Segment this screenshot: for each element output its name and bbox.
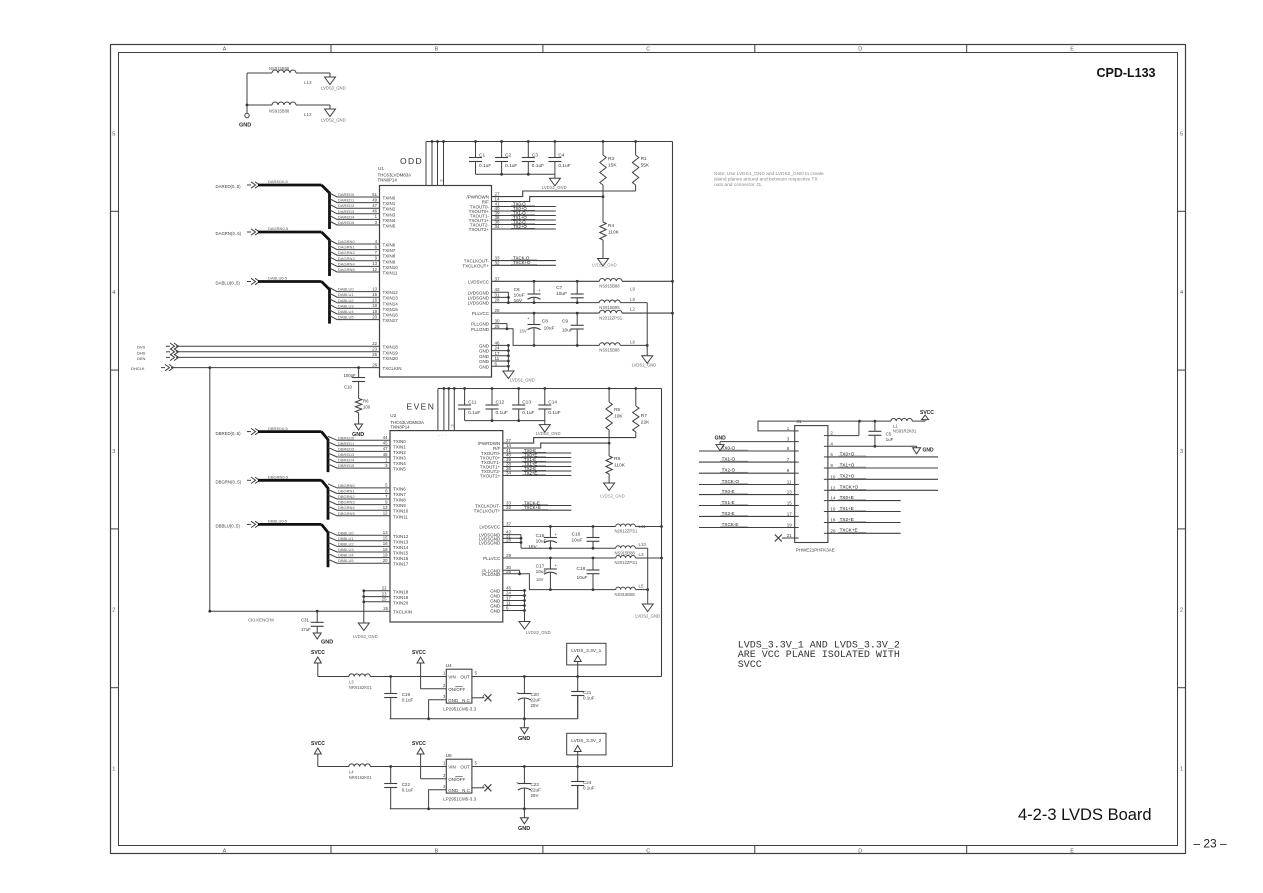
svg-text:19: 19 — [372, 309, 377, 314]
svg-text:EVEN: EVEN — [407, 402, 436, 412]
svg-text:.. .. ..: .. .. .. — [426, 187, 435, 192]
svg-text:L3: L3 — [639, 552, 645, 557]
svg-text:R8: R8 — [614, 456, 620, 462]
svg-text:NR9152K01: NR9152K01 — [349, 775, 372, 780]
svg-text:1: 1 — [1180, 767, 1183, 773]
svg-text:DARED5: DARED5 — [338, 220, 355, 225]
svg-text:16: 16 — [830, 507, 836, 512]
svg-text:DARED0: DARED0 — [338, 192, 355, 197]
svg-text:NS915B88: NS915B88 — [269, 66, 290, 71]
svg-text:GND: GND — [321, 640, 333, 646]
svg-text:GND: GND — [518, 736, 530, 742]
svg-text:0.1uF: 0.1uF — [583, 696, 595, 701]
svg-text:PLLVCC: PLLVCC — [483, 556, 501, 561]
svg-text:25: 25 — [506, 569, 512, 574]
svg-text:C: C — [646, 47, 650, 53]
svg-text:3: 3 — [112, 449, 115, 455]
svg-text:51: 51 — [372, 192, 377, 197]
svg-text:47: 47 — [372, 203, 377, 208]
svg-text:R6: R6 — [363, 399, 369, 404]
svg-text:TXIN15: TXIN15 — [393, 551, 409, 556]
svg-text:TXCK+E: TXCK+E — [840, 528, 858, 533]
svg-text:L13: L13 — [304, 80, 312, 85]
svg-text:N2012ZPS1: N2012ZPS1 — [615, 560, 638, 565]
svg-text:TXIN12: TXIN12 — [383, 290, 399, 295]
svg-text:A: A — [223, 47, 227, 53]
svg-text:TXIN14: TXIN14 — [393, 545, 409, 550]
svg-text:DARED(0..5): DARED(0..5) — [216, 184, 242, 189]
svg-text:TXCLKIN: TXCLKIN — [393, 610, 412, 615]
svg-text:TX2-O: TX2-O — [722, 468, 736, 473]
svg-text:C14: C14 — [548, 400, 557, 406]
svg-text:SVCC: SVCC — [311, 741, 325, 747]
svg-text:.. .. ..: .. .. .. — [438, 432, 447, 437]
svg-text:DARED2: DARED2 — [338, 203, 355, 208]
svg-text:R: R — [440, 178, 443, 183]
svg-text:ARE VCC PLANE ISOLATED WITH: ARE VCC PLANE ISOLATED WITH — [738, 650, 900, 661]
svg-text:TXIN19: TXIN19 — [383, 350, 399, 355]
svg-text:TXOUT2+: TXOUT2+ — [469, 227, 490, 232]
svg-text:10uF: 10uF — [577, 575, 588, 581]
svg-text:DBBLU5: DBBLU5 — [338, 558, 354, 563]
svg-text:R7: R7 — [641, 413, 647, 419]
svg-text:DABLU(0..5): DABLU(0..5) — [216, 281, 241, 286]
svg-text:TXIN6: TXIN6 — [383, 243, 396, 248]
svg-text:DBGRN(0..5): DBGRN(0..5) — [216, 480, 242, 485]
svg-text:C12: C12 — [496, 400, 505, 406]
svg-text:19: 19 — [383, 552, 388, 557]
svg-text:TXIN7: TXIN7 — [393, 492, 406, 497]
svg-text:LVDS2_GND: LVDS2_GND — [635, 614, 660, 619]
svg-text:LVDS_3.3V_1: LVDS_3.3V_1 — [571, 648, 601, 654]
svg-text:CPD-L133: CPD-L133 — [1096, 66, 1155, 80]
svg-text:12: 12 — [383, 511, 388, 516]
svg-text:DABLU5: DABLU5 — [338, 315, 354, 320]
svg-text:N.C: N.C — [462, 698, 471, 703]
svg-text:16V: 16V — [514, 298, 523, 304]
svg-text:NS915B88: NS915B88 — [269, 109, 290, 114]
svg-text:16V: 16V — [536, 577, 544, 582]
svg-text:R3: R3 — [608, 156, 614, 162]
svg-text:C19: C19 — [402, 692, 411, 697]
svg-text:0.1uF: 0.1uF — [479, 163, 491, 169]
svg-text:LVDS1_GND: LVDS1_GND — [542, 185, 567, 190]
svg-text:GND: GND — [490, 609, 501, 614]
svg-text:C17: C17 — [536, 564, 545, 570]
svg-text:32: 32 — [495, 260, 501, 265]
svg-text:DBRED1: DBRED1 — [338, 441, 355, 446]
svg-text:NS915B88: NS915B88 — [615, 592, 636, 597]
svg-text:SVCC: SVCC — [412, 741, 426, 747]
svg-text:2: 2 — [112, 608, 115, 614]
svg-text:22: 22 — [382, 586, 387, 591]
svg-text:DABLU4: DABLU4 — [338, 309, 354, 314]
svg-text:LVDS1_GND: LVDS1_GND — [632, 363, 657, 368]
svg-text:L4: L4 — [349, 770, 354, 775]
svg-text:DAGRN4: DAGRN4 — [338, 261, 355, 266]
svg-text:10uF: 10uF — [536, 569, 547, 575]
svg-text:29: 29 — [506, 553, 512, 558]
svg-text:LVDS1_GND: LVDS1_GND — [510, 378, 535, 383]
svg-text:DHCLK: DHCLK — [131, 366, 145, 371]
svg-text:48: 48 — [383, 452, 388, 457]
svg-text:TNN8P14: TNN8P14 — [378, 178, 398, 183]
svg-text:J1: J1 — [796, 419, 801, 425]
svg-text:TXIN5: TXIN5 — [393, 467, 406, 472]
svg-text:1: 1 — [112, 767, 115, 773]
svg-text:25: 25 — [372, 352, 377, 357]
svg-text:10: 10 — [830, 474, 836, 479]
svg-text:110K: 110K — [614, 463, 626, 469]
svg-text:22: 22 — [372, 341, 377, 346]
svg-text:DABLU1: DABLU1 — [338, 292, 354, 297]
svg-text:VIN: VIN — [448, 675, 456, 680]
svg-text:PLLGND: PLLGND — [482, 572, 501, 577]
svg-text:R5: R5 — [614, 407, 620, 413]
svg-text:15: 15 — [372, 292, 377, 297]
svg-text:DBBLU0: DBBLU0 — [338, 530, 354, 535]
svg-text:TNN8P14: TNN8P14 — [390, 425, 410, 430]
svg-text:C2: C2 — [505, 153, 511, 159]
svg-text:TXIN13: TXIN13 — [383, 296, 399, 301]
svg-text:TX0+O: TX0+O — [840, 451, 855, 456]
svg-text:TXIN10: TXIN10 — [383, 265, 399, 270]
svg-text:DBBLU4: DBBLU4 — [338, 553, 354, 558]
svg-text:10uF: 10uF — [556, 291, 567, 297]
svg-text:TXCK+O: TXCK+O — [840, 485, 859, 490]
svg-text:N.C: N.C — [462, 788, 471, 793]
svg-text:4: 4 — [1180, 290, 1183, 296]
svg-text:L11: L11 — [639, 524, 647, 529]
svg-text:C22: C22 — [402, 782, 411, 787]
svg-text:DBGRN5: DBGRN5 — [338, 511, 355, 516]
svg-text:LVDSVCC: LVDSVCC — [479, 525, 501, 530]
svg-text:4: 4 — [112, 290, 115, 296]
svg-text:TXIN3: TXIN3 — [383, 212, 396, 217]
svg-text:D: D — [858, 47, 862, 53]
svg-text:15: 15 — [383, 536, 388, 541]
svg-text:3: 3 — [1180, 449, 1183, 455]
svg-text:13: 13 — [383, 505, 388, 510]
svg-text:34: 34 — [506, 471, 512, 476]
svg-text:DAGRN0: DAGRN0 — [338, 239, 355, 244]
svg-text:TXIN14: TXIN14 — [383, 301, 399, 306]
svg-text:DBBLU0-5: DBBLU0-5 — [268, 519, 288, 524]
svg-text:C7: C7 — [556, 285, 562, 291]
svg-text:10uF: 10uF — [572, 538, 583, 544]
svg-text:DBRED0-5: DBRED0-5 — [268, 426, 289, 431]
svg-text:E: E — [1070, 849, 1074, 855]
svg-text:17: 17 — [787, 511, 793, 516]
svg-text:5: 5 — [112, 131, 115, 137]
svg-text:DBBLU2: DBBLU2 — [338, 541, 354, 546]
svg-text:45: 45 — [383, 441, 388, 446]
svg-text:R1: R1 — [641, 156, 647, 162]
svg-text:DBRED(0..5): DBRED(0..5) — [216, 431, 242, 436]
svg-text:2: 2 — [1180, 608, 1183, 614]
svg-text:29: 29 — [495, 308, 501, 313]
svg-text:0.1uF: 0.1uF — [532, 163, 544, 169]
svg-text:100: 100 — [363, 405, 371, 410]
svg-text:LVDS2_GND: LVDS2_GND — [600, 494, 625, 499]
svg-text:C4: C4 — [558, 153, 564, 159]
svg-text:GND: GND — [448, 698, 459, 703]
svg-text:+: + — [538, 288, 541, 293]
svg-text:4-2-3 LVDS Board: 4-2-3 LVDS Board — [1018, 806, 1152, 824]
svg-text:TXIN2: TXIN2 — [383, 207, 396, 212]
svg-text:TXIN18: TXIN18 — [393, 589, 409, 594]
svg-text:LVDS_3.3V_2: LVDS_3.3V_2 — [571, 738, 601, 744]
svg-text:TXIN17: TXIN17 — [393, 562, 409, 567]
svg-text:CKI:KENCHK: CKI:KENCHK — [248, 618, 274, 623]
svg-text:TXIN13: TXIN13 — [393, 539, 409, 544]
svg-text:ON/OFF: ON/OFF — [448, 777, 465, 782]
svg-text:C6: C6 — [514, 287, 520, 293]
svg-text:DABLU0-5: DABLU0-5 — [268, 276, 288, 281]
svg-text:OUT: OUT — [460, 765, 470, 770]
svg-text:TXCK-O: TXCK-O — [722, 479, 740, 484]
svg-text:TXIN1: TXIN1 — [383, 201, 396, 206]
svg-text:DBGRN4: DBGRN4 — [338, 505, 355, 510]
svg-text:DBRED3: DBRED3 — [338, 452, 355, 457]
svg-text:DVS: DVS — [137, 345, 146, 350]
svg-text:C9: C9 — [562, 319, 568, 325]
svg-text:outs and connector J1.: outs and connector J1. — [714, 182, 763, 188]
svg-text:0.1uF: 0.1uF — [505, 163, 517, 169]
svg-text:55K: 55K — [641, 163, 650, 169]
svg-text:TX1-E: TX1-E — [722, 500, 735, 505]
svg-text:TXIN6: TXIN6 — [393, 486, 406, 491]
svg-text:GND: GND — [518, 826, 530, 832]
svg-text:DBGRN0: DBGRN0 — [338, 483, 355, 488]
svg-text:GND: GND — [479, 359, 490, 364]
svg-text:DEN: DEN — [137, 356, 146, 361]
svg-text:DAGRN3: DAGRN3 — [338, 256, 355, 261]
svg-text:TXIN17: TXIN17 — [383, 318, 399, 323]
svg-text:DARED4: DARED4 — [338, 214, 355, 219]
svg-text:LVDSGND: LVDSGND — [479, 541, 501, 546]
svg-text:DABLU3: DABLU3 — [338, 303, 354, 308]
svg-text:C21: C21 — [583, 690, 592, 695]
svg-text:11: 11 — [787, 480, 792, 485]
svg-text:DBGRN1: DBGRN1 — [338, 489, 355, 494]
svg-text:DARED3: DARED3 — [338, 209, 355, 214]
svg-text:+: + — [527, 316, 530, 321]
svg-text:DARED0-5: DARED0-5 — [268, 179, 289, 184]
svg-text:15K: 15K — [608, 163, 617, 169]
svg-text:R4: R4 — [608, 223, 614, 229]
svg-text:– 23 –: – 23 – — [1193, 837, 1227, 851]
svg-text:GND: GND — [715, 436, 727, 442]
svg-text:TX1+O: TX1+O — [840, 462, 855, 467]
svg-text:17uF: 17uF — [301, 627, 311, 632]
svg-text:DBBLU3: DBBLU3 — [338, 547, 354, 552]
svg-text:GND: GND — [923, 448, 935, 454]
svg-text:16V: 16V — [519, 328, 527, 333]
svg-text:C16: C16 — [572, 532, 581, 538]
svg-text:TX2+O: TX2+O — [840, 474, 855, 479]
svg-text:U5: U5 — [446, 753, 452, 759]
svg-text:U1: U1 — [378, 166, 384, 171]
svg-text:37: 37 — [506, 522, 512, 527]
svg-text:LVDSGND: LVDSGND — [468, 301, 490, 306]
svg-text:110K: 110K — [608, 230, 620, 236]
svg-text:13: 13 — [383, 530, 388, 535]
svg-text:E: E — [1070, 47, 1074, 53]
svg-text:34: 34 — [495, 224, 501, 229]
svg-text:12: 12 — [372, 267, 377, 272]
svg-text:+: + — [555, 532, 558, 537]
svg-text:N2012ZPS1: N2012ZPS1 — [599, 315, 622, 320]
svg-text:TX1+E: TX1+E — [840, 506, 854, 511]
svg-text:TXIN1: TXIN1 — [393, 444, 406, 449]
svg-text:LP2951CM5-3.3: LP2951CM5-3.3 — [443, 707, 476, 712]
svg-text:TXIN11: TXIN11 — [383, 271, 398, 276]
svg-text:ODD: ODD — [400, 156, 423, 166]
svg-text:13: 13 — [787, 490, 793, 495]
svg-text:+: + — [516, 691, 519, 696]
svg-text:22K: 22K — [641, 420, 650, 426]
svg-text:SVCC: SVCC — [920, 410, 934, 416]
svg-text:13: 13 — [372, 286, 377, 291]
svg-text:10uF: 10uF — [562, 328, 573, 334]
svg-text:TX2+E: TX2+E — [840, 517, 854, 522]
svg-text:5: 5 — [1180, 131, 1183, 137]
svg-text:TXCLKOUT+: TXCLKOUT+ — [474, 508, 501, 513]
svg-text:NS91R2K01: NS91R2K01 — [893, 429, 917, 434]
svg-text:DBRED4: DBRED4 — [338, 458, 355, 463]
svg-text:LVDS3_GND: LVDS3_GND — [321, 86, 346, 91]
svg-text:21: 21 — [787, 533, 793, 538]
svg-text:25V: 25V — [531, 703, 539, 708]
svg-text:GND: GND — [448, 788, 459, 793]
svg-text:0.1uF: 0.1uF — [583, 786, 595, 791]
svg-text:10uF: 10uF — [536, 539, 547, 545]
svg-text:47: 47 — [383, 446, 388, 451]
svg-text:NR9152K01: NR9152K01 — [349, 685, 372, 690]
svg-text:L10: L10 — [639, 542, 647, 547]
svg-text:TXIN15: TXIN15 — [383, 307, 399, 312]
svg-text:22uF: 22uF — [531, 788, 542, 793]
svg-text:C: C — [646, 849, 650, 855]
svg-text:0.1uF: 0.1uF — [402, 788, 414, 793]
svg-text:A: A — [223, 849, 227, 855]
svg-text:C11: C11 — [468, 400, 477, 406]
svg-text:C31: C31 — [301, 618, 309, 623]
svg-text:L5: L5 — [639, 584, 645, 589]
svg-text:DBRED5: DBRED5 — [338, 463, 355, 468]
svg-text:TX0+E: TX0+E — [840, 495, 854, 500]
svg-text:100pF: 100pF — [344, 373, 357, 378]
svg-text:TXIN12: TXIN12 — [393, 534, 409, 539]
svg-text:B: B — [435, 849, 439, 855]
svg-text:GND: GND — [239, 123, 251, 129]
svg-text:L3: L3 — [349, 680, 354, 685]
svg-text:L9: L9 — [630, 287, 636, 292]
svg-text:TX2-E: TX2-E — [722, 511, 735, 516]
svg-text:TXCLKIN: TXCLKIN — [383, 366, 402, 371]
svg-text:NS915B88: NS915B88 — [599, 305, 620, 310]
svg-text:TXCK-E: TXCK-E — [722, 522, 739, 527]
svg-text:16: 16 — [372, 298, 377, 303]
svg-text:11: 11 — [495, 356, 500, 361]
svg-text:DBGRN2: DBGRN2 — [338, 494, 355, 499]
svg-text:DABLU2: DABLU2 — [338, 298, 354, 303]
svg-text:0.1uF: 0.1uF — [496, 410, 508, 416]
svg-text:28: 28 — [495, 298, 501, 303]
svg-text:B: B — [435, 47, 439, 53]
svg-text:TXIN16: TXIN16 — [383, 313, 399, 318]
svg-text:C18: C18 — [577, 566, 586, 572]
svg-text:DBGRN0-5: DBGRN0-5 — [268, 475, 289, 480]
svg-text:SVCC: SVCC — [738, 660, 762, 671]
svg-text:LVDS2_GND: LVDS2_GND — [536, 431, 561, 436]
svg-text:19: 19 — [787, 523, 793, 528]
svg-text:LVDS2_GND: LVDS2_GND — [353, 634, 378, 639]
svg-text:20: 20 — [383, 558, 388, 563]
svg-text:C13: C13 — [522, 400, 531, 406]
svg-text:46: 46 — [372, 209, 377, 214]
svg-text:DBBLU1: DBBLU1 — [338, 536, 354, 541]
svg-text:Note: Use LVDS1_GND and LVDS2_: Note: Use LVDS1_GND and LVDS2_GND to cre… — [714, 171, 824, 177]
svg-text:DBRED0: DBRED0 — [338, 435, 355, 440]
svg-text:DBRED2: DBRED2 — [338, 446, 355, 451]
svg-text:16V: 16V — [528, 544, 537, 550]
svg-text:TX0-E: TX0-E — [722, 489, 735, 494]
svg-text:+: + — [516, 781, 519, 786]
svg-text:DBBLU(0..5): DBBLU(0..5) — [216, 524, 241, 529]
svg-text:C5: C5 — [886, 432, 892, 437]
svg-text:C24: C24 — [583, 780, 592, 785]
svg-text:TXIN16: TXIN16 — [393, 556, 409, 561]
svg-text:L12: L12 — [304, 112, 312, 117]
svg-text:10uF: 10uF — [514, 293, 525, 299]
svg-text:DHS: DHS — [137, 350, 146, 355]
svg-text:DBGRN3: DBGRN3 — [338, 500, 355, 505]
svg-text:TXIN20: TXIN20 — [393, 600, 409, 605]
svg-text:U2: U2 — [390, 413, 396, 418]
svg-text:C23: C23 — [531, 782, 540, 787]
svg-text:0.1uF: 0.1uF — [468, 410, 480, 416]
svg-text:TXIN4: TXIN4 — [393, 461, 406, 466]
svg-text:TX1-O: TX1-O — [722, 457, 736, 462]
svg-text:SVCC: SVCC — [412, 650, 426, 656]
svg-text:TXIN9: TXIN9 — [393, 503, 406, 508]
svg-text:LP2951CM5-3.3: LP2951CM5-3.3 — [443, 797, 476, 802]
svg-text:N2012ZPS1: N2012ZPS1 — [615, 529, 638, 534]
svg-text:NS915B88: NS915B88 — [599, 284, 620, 289]
svg-text:NS915B88: NS915B88 — [599, 348, 620, 353]
svg-text:15: 15 — [787, 501, 793, 506]
svg-text:TXIN3: TXIN3 — [393, 456, 406, 461]
svg-text:TXIN8: TXIN8 — [383, 254, 396, 259]
svg-text:49: 49 — [372, 197, 377, 202]
svg-text:10K: 10K — [614, 414, 623, 420]
svg-text:18: 18 — [372, 303, 377, 308]
svg-text:DAGRN1: DAGRN1 — [338, 245, 355, 250]
svg-text:C3: C3 — [532, 153, 538, 159]
svg-text:32: 32 — [506, 505, 512, 510]
svg-text:TXIN10: TXIN10 — [393, 509, 409, 514]
svg-text:25: 25 — [382, 597, 387, 602]
svg-text:25V: 25V — [531, 793, 539, 798]
svg-text:DARED1: DARED1 — [338, 198, 355, 203]
svg-text:37: 37 — [495, 276, 501, 281]
svg-text:0.1uF: 0.1uF — [402, 698, 414, 703]
svg-text:VIN: VIN — [448, 765, 456, 770]
svg-text:R: R — [451, 423, 454, 428]
svg-text:C10: C10 — [344, 385, 352, 390]
